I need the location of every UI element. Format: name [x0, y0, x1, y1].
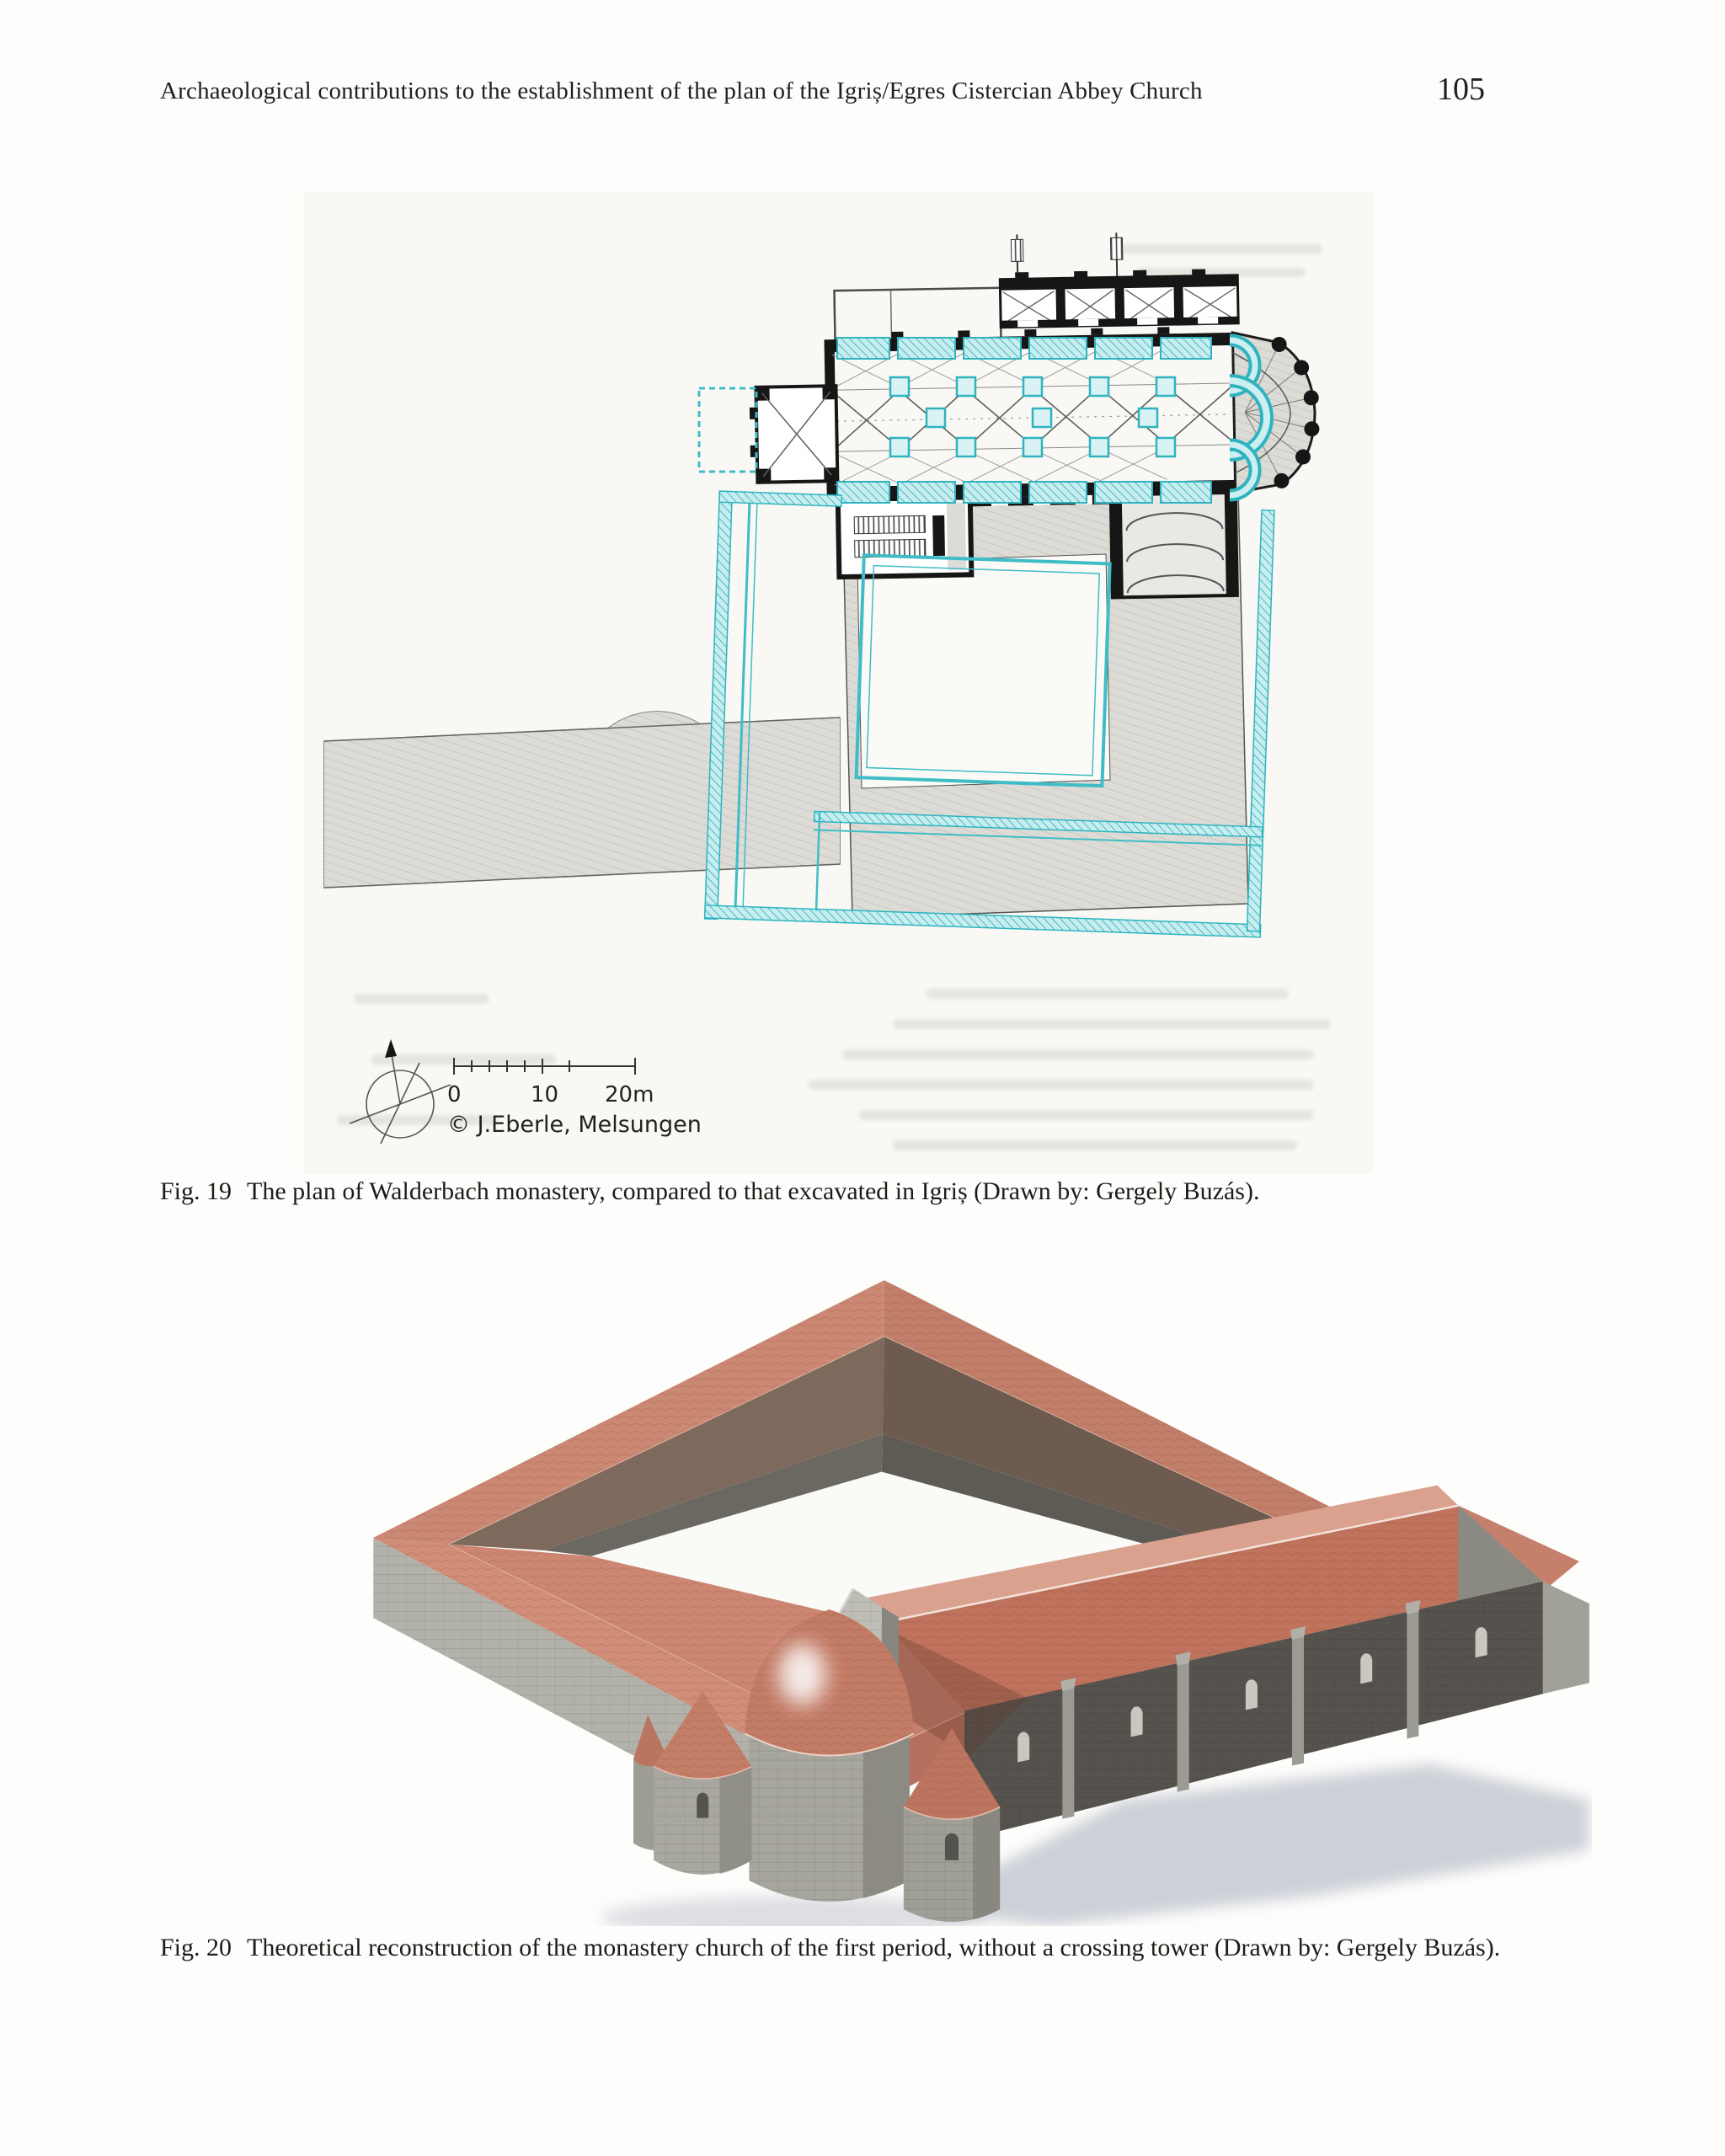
scale-label-10: 10	[531, 1082, 558, 1107]
figure-20-render-image	[320, 1259, 1592, 1926]
west-block	[749, 386, 837, 483]
figure-20-caption-text: Theoretical reconstruction of the monast…	[247, 1934, 1500, 1961]
figure-19-caption: Fig. 19The plan of Walderbach monastery,…	[160, 1177, 1575, 1206]
plan-drawing: 0 10 20m © J.Eberle, Melsungen	[303, 192, 1373, 1173]
figure-20-caption: Fig. 20Theoretical reconstruction of the…	[160, 1934, 1575, 1962]
figure-19-label: Fig. 19	[160, 1177, 232, 1205]
scale-bar-labels: 0 10 20m © J.Eberle, Melsungen	[447, 1082, 702, 1138]
chancel-wall	[1543, 1582, 1589, 1694]
dome-highlight	[778, 1644, 825, 1705]
shaded-area-gray	[324, 488, 1248, 918]
igris-pier-footings	[890, 377, 1175, 456]
scale-label-0: 0	[447, 1082, 462, 1107]
credit-text: © J.Eberle, Melsungen	[447, 1112, 702, 1138]
east-range	[1111, 493, 1237, 598]
running-header-title: Archaeological contributions to the esta…	[160, 77, 1203, 104]
reconstruction-render	[320, 1259, 1592, 1926]
figure-20-label: Fig. 20	[160, 1934, 232, 1961]
figure-19-caption-text: The plan of Walderbach monastery, compar…	[247, 1177, 1259, 1205]
figure-19-plan-image: 0 10 20m © J.Eberle, Melsungen	[303, 192, 1373, 1173]
page-number: 105	[1437, 71, 1485, 108]
igris-west-dashed-outline	[699, 388, 756, 472]
scale-label-20m: 20m	[605, 1082, 654, 1107]
running-header: Archaeological contributions to the esta…	[160, 77, 1339, 105]
south-range	[838, 497, 972, 577]
